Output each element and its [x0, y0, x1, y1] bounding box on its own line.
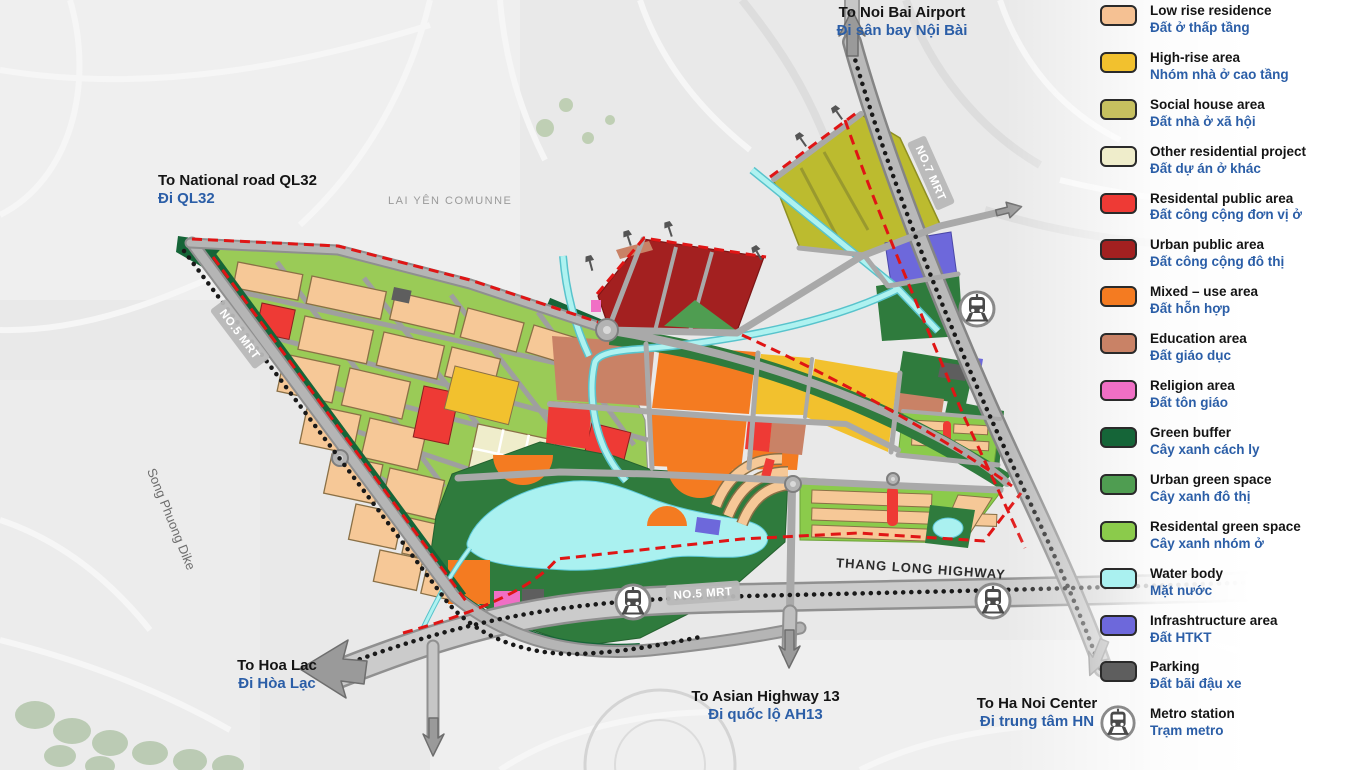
legend-swatch	[1100, 380, 1137, 401]
residential-public-strip	[887, 486, 898, 526]
label-en: To National road QL32	[158, 172, 317, 190]
mixed-use-block	[650, 412, 747, 470]
legend-item-parking: ParkingĐất bãi đậu xe	[1100, 659, 1364, 706]
legend-label-en: Religion area	[1150, 378, 1235, 394]
legend-label-vi: Đất hỗn hợp	[1150, 301, 1258, 317]
legend-label-en: Education area	[1150, 331, 1247, 347]
legend-label-vi: Đất công cộng đơn vị ở	[1150, 207, 1302, 223]
label-vi: Đi quốc lộ AH13	[688, 706, 843, 724]
legend-label-en: Parking	[1150, 659, 1242, 675]
metro-station-icon	[1099, 704, 1137, 742]
legend-swatch	[1100, 193, 1137, 214]
legend-label-vi: Cây xanh đô thị	[1150, 489, 1272, 505]
legend-swatch	[1100, 661, 1137, 682]
metro-station-icon	[960, 292, 994, 326]
label-en: To Hoa Lac	[222, 657, 332, 675]
legend-item-social-house: Social house areaĐất nhà ở xã hội	[1100, 97, 1364, 144]
label-lai-yen-commune: LAI YÊN COMUNNE	[388, 195, 512, 208]
legend-swatch	[1100, 286, 1137, 307]
legend-label-en: Social house area	[1150, 97, 1265, 113]
legend-item-green-buffer: Green bufferCây xanh cách ly	[1100, 425, 1364, 472]
legend-label-en: Infrashtructure area	[1150, 613, 1278, 629]
legend-label-en: Residental public area	[1150, 191, 1302, 207]
label-to-hoa-lac: To Hoa Lac Đi Hòa Lạc	[222, 657, 332, 692]
label-vi: Đi sân bay Nội Bài	[822, 22, 982, 40]
label-vi: Đi Hòa Lạc	[222, 675, 332, 693]
legend-label-vi: Mặt nước	[1150, 583, 1223, 599]
master-plan-screenshot: NO.5 MRT NO.5 MRT NO.7 MRT	[0, 0, 1366, 770]
legend-swatch	[1100, 521, 1137, 542]
legend-swatch	[1100, 427, 1137, 448]
legend-swatch	[1100, 239, 1137, 260]
legend-item-low-rise: Low rise residenceĐất ở thấp tầng	[1100, 3, 1364, 50]
legend-label-vi: Đất ở thấp tầng	[1150, 20, 1272, 36]
label-to-asian-highway: To Asian Highway 13 Đi quốc lộ AH13	[688, 688, 843, 723]
label-vi: Đi QL32	[158, 190, 317, 208]
legend-label-vi: Đất bãi đậu xe	[1150, 676, 1242, 692]
legend-item-education: Education areaĐất giáo dục	[1100, 331, 1364, 378]
label-vi: Đi trung tâm HN	[972, 713, 1102, 731]
legend-swatch	[1100, 615, 1137, 636]
label-to-noi-bai: To Noi Bai Airport Đi sân bay Nội Bài	[822, 4, 982, 39]
legend-item-residential-public: Residental public areaĐất công cộng đơn …	[1100, 191, 1364, 238]
legend-label-en: Green buffer	[1150, 425, 1260, 441]
legend-swatch	[1100, 474, 1137, 495]
legend-item-urban-public: Urban public areaĐất công cộng đô thị	[1100, 237, 1364, 284]
legend-label-en: Other residential project	[1150, 144, 1306, 160]
education-block	[769, 421, 806, 455]
legend-label-en: Urban public area	[1150, 237, 1284, 253]
label-en: To Noi Bai Airport	[822, 4, 982, 22]
label-text: LAI YÊN COMUNNE	[388, 195, 512, 207]
legend-label-vi: Trạm metro	[1150, 723, 1235, 739]
legend-label-vi: Cây xanh nhóm ở	[1150, 536, 1301, 552]
legend: Low rise residenceĐất ở thấp tầng High-r…	[1100, 3, 1364, 753]
legend-swatch	[1100, 333, 1137, 354]
religion-block	[591, 300, 601, 312]
label-en: To Ha Noi Center	[972, 695, 1102, 713]
legend-item-high-rise: High-rise areaNhóm nhà ở cao tầng	[1100, 50, 1364, 97]
legend-item-other-residential: Other residential projectĐất dự án ở khá…	[1100, 144, 1364, 191]
legend-label-vi: Cây xanh cách ly	[1150, 442, 1260, 458]
legend-label-vi: Đất dự án ở khác	[1150, 161, 1306, 177]
legend-label-en: Mixed – use area	[1150, 284, 1258, 300]
legend-label-vi: Đất HTKT	[1150, 630, 1278, 646]
metro-station-icon	[616, 585, 650, 619]
legend-label-vi: Đất nhà ở xã hội	[1150, 114, 1265, 130]
legend-label-en: Urban green space	[1150, 472, 1272, 488]
pond	[933, 518, 963, 538]
legend-item-metro-station: Metro stationTrạm metro	[1100, 706, 1364, 753]
label-en: To Asian Highway 13	[688, 688, 843, 706]
legend-item-water-body: Water bodyMặt nước	[1100, 566, 1364, 613]
label-to-ql32: To National road QL32 Đi QL32	[158, 172, 317, 207]
legend-item-mixed-use: Mixed – use areaĐất hỗn hợp	[1100, 284, 1364, 331]
legend-label-en: High-rise area	[1150, 50, 1289, 66]
legend-swatch	[1100, 5, 1137, 26]
legend-label-en: Water body	[1150, 566, 1223, 582]
legend-label-vi: Đất giáo dục	[1150, 348, 1247, 364]
legend-swatch	[1100, 52, 1137, 73]
legend-item-residential-green: Residental green spaceCây xanh nhóm ở	[1100, 519, 1364, 566]
legend-swatch	[1100, 99, 1137, 120]
legend-label-vi: Đất tôn giáo	[1150, 395, 1235, 411]
legend-swatch	[1100, 568, 1137, 589]
legend-item-infrastructure: Infrashtructure areaĐất HTKT	[1100, 613, 1364, 660]
legend-label-en: Low rise residence	[1150, 3, 1272, 19]
label-to-hanoi-center: To Ha Noi Center Đi trung tâm HN	[972, 695, 1102, 730]
legend-label-en: Residental green space	[1150, 519, 1301, 535]
legend-item-urban-green: Urban green spaceCây xanh đô thị	[1100, 472, 1364, 519]
legend-label-vi: Nhóm nhà ở cao tầng	[1150, 67, 1289, 83]
legend-swatch	[1100, 146, 1137, 167]
legend-label-vi: Đất công cộng đô thị	[1150, 254, 1284, 270]
legend-label-en: Metro station	[1150, 706, 1235, 722]
legend-item-religion: Religion areaĐất tôn giáo	[1100, 378, 1364, 425]
